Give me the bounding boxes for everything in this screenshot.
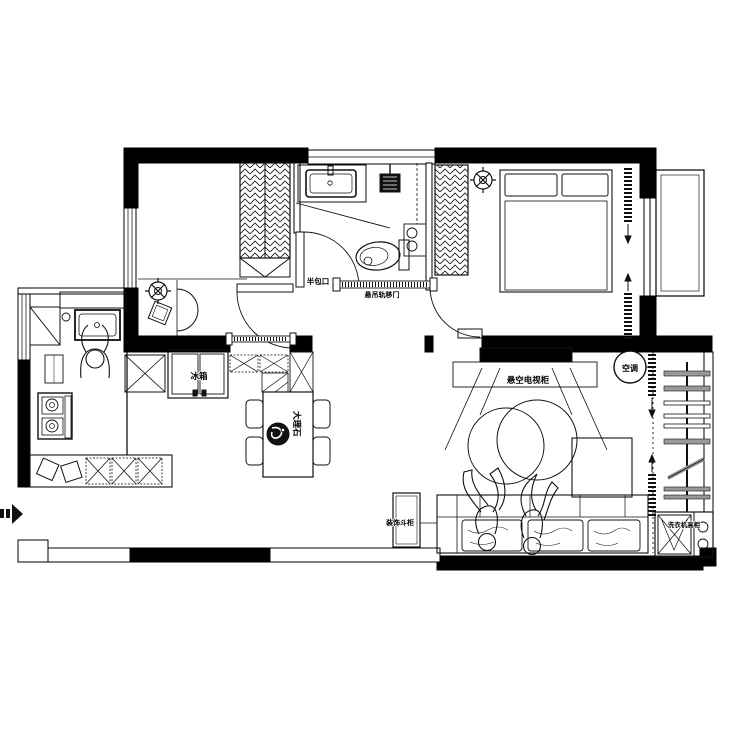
- decor-chest-label: 装饰斗柜: [385, 518, 414, 527]
- tv-cabinet: [480, 348, 572, 362]
- stool: [148, 301, 171, 324]
- wall-bathroom-left: [294, 163, 300, 233]
- walls: [18, 148, 716, 570]
- door-leaf-bedroom2: [237, 284, 293, 292]
- chair-semicircle: [177, 289, 198, 331]
- living-room: 悬空电视柜 空调: [437, 348, 655, 555]
- dining: 冰箱 大理石: [125, 333, 437, 547]
- person-lying: [463, 468, 505, 551]
- wall-kitchen-top: [18, 288, 124, 294]
- bathroom: [296, 163, 437, 291]
- curtain-icon: [625, 168, 631, 243]
- window-left-bedroom: [124, 208, 136, 288]
- table-label: 大理石: [292, 411, 302, 437]
- curtain-icon: [625, 274, 631, 340]
- washer-cabinet-label: 洗衣机高柜: [668, 520, 701, 529]
- ceiling-lamp-icon: [145, 278, 171, 304]
- person-lying: [521, 474, 558, 555]
- chair: [246, 400, 263, 428]
- wall-top-left: [124, 148, 308, 163]
- hall-cabinets: [230, 352, 313, 392]
- floor-plan-drawing: 冰箱 大理石: [0, 0, 740, 740]
- wardrobe-master: [435, 165, 468, 275]
- toilet-icon: [355, 240, 409, 272]
- person-washing: [81, 325, 110, 378]
- rug-circle: [468, 408, 544, 484]
- drying-rack-icon: [664, 362, 710, 512]
- ac-label: 空调: [622, 363, 638, 373]
- entry-arrow-icon: [0, 504, 23, 524]
- kitchen-sliding-door: [226, 333, 296, 345]
- chair: [313, 400, 330, 428]
- fridge-label: 冰箱: [190, 371, 208, 381]
- wall-corner-ne: [640, 148, 656, 198]
- floor-plan-page: { "plan": { "type": "residential-floor-p…: [0, 0, 740, 740]
- chair: [313, 437, 330, 465]
- bed: [500, 170, 612, 292]
- wall-kitchen-left-lower: [18, 360, 30, 487]
- sliding-door-label: 悬吊轨移门: [364, 290, 400, 299]
- ac-platform: [656, 170, 704, 296]
- wall-top-right: [435, 148, 643, 163]
- tv-cabinet-label: 悬空电视柜: [506, 375, 550, 385]
- dining-table: 大理石: [246, 392, 330, 477]
- side-table: [572, 438, 632, 497]
- wall-left-upper: [124, 148, 138, 208]
- wall-bathroom-right: [426, 163, 432, 290]
- chair: [246, 437, 263, 465]
- ceiling-lamp-icon: [470, 167, 496, 193]
- bedroom-secondary: [138, 163, 293, 348]
- door-leaf-bathroom: [296, 232, 304, 287]
- wall-bottom-living: [437, 556, 703, 570]
- sliding-door-bathroom: [333, 278, 437, 291]
- curtain-icon: [649, 354, 655, 417]
- kitchen: [30, 292, 172, 487]
- window-kitchen-left: [18, 294, 30, 360]
- logo-plate-icon: [267, 423, 289, 445]
- half-wrap-label: 半包口: [307, 276, 330, 286]
- stove-icon: [38, 393, 72, 439]
- seat-cushion: [588, 520, 640, 551]
- seat-cushion: [528, 520, 583, 551]
- bedroom-master: [430, 165, 631, 340]
- curtain-icon: [649, 455, 655, 516]
- entry-bench: [30, 455, 172, 487]
